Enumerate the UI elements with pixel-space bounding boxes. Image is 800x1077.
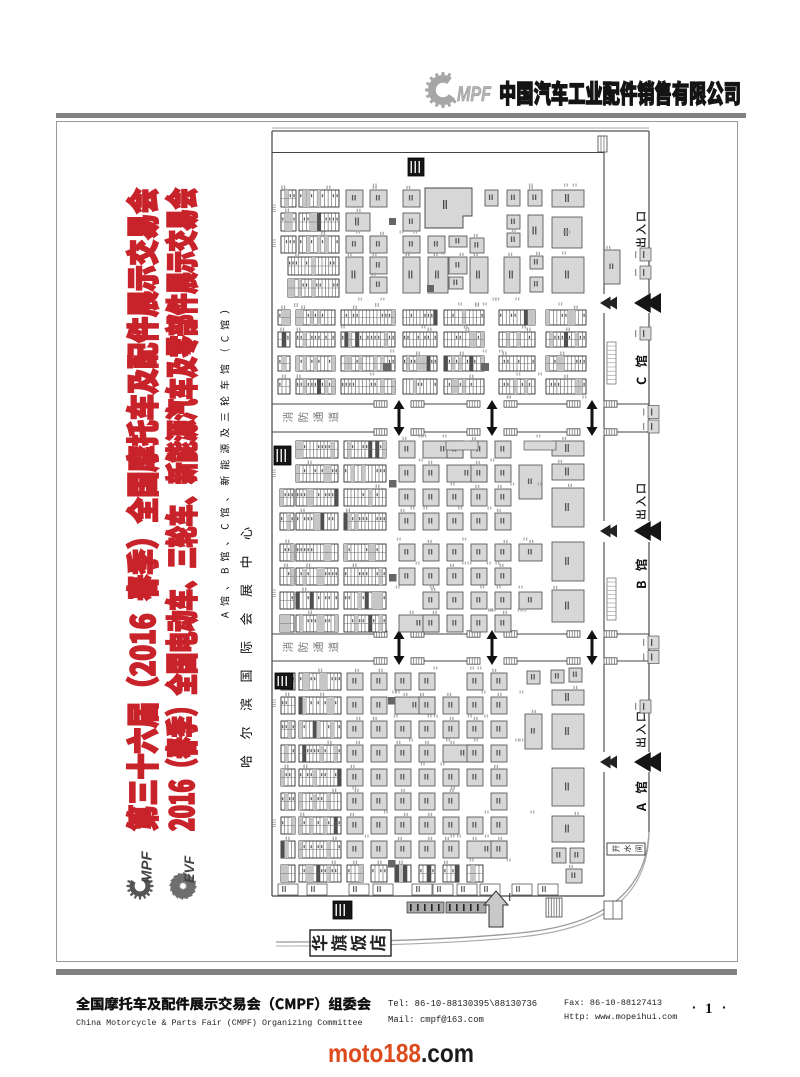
svg-text:·: ·	[722, 999, 727, 1015]
svg-text:moto188: moto188	[328, 1038, 421, 1068]
svg-text:Mail: cmpf@163.com: Mail: cmpf@163.com	[388, 1015, 484, 1025]
svg-text:.com: .com	[421, 1038, 474, 1068]
svg-text:MPF: MPF	[457, 83, 492, 106]
svg-text:Fax: 86-10-88127413: Fax: 86-10-88127413	[564, 998, 662, 1008]
svg-text:MPF: MPF	[139, 851, 156, 884]
svg-text:Http: www.mopeihui.com: Http: www.mopeihui.com	[564, 1012, 677, 1022]
svg-text:EVF: EVF	[181, 855, 197, 883]
svg-text:·: ·	[692, 999, 697, 1015]
svg-text:Tel: 86-10-88130395\88130736: Tel: 86-10-88130395\88130736	[388, 999, 537, 1009]
svg-text:China Motorcycle & Parts Fair: China Motorcycle & Parts Fair (CMPF) Org…	[76, 1018, 362, 1028]
svg-text:1: 1	[705, 1001, 713, 1017]
